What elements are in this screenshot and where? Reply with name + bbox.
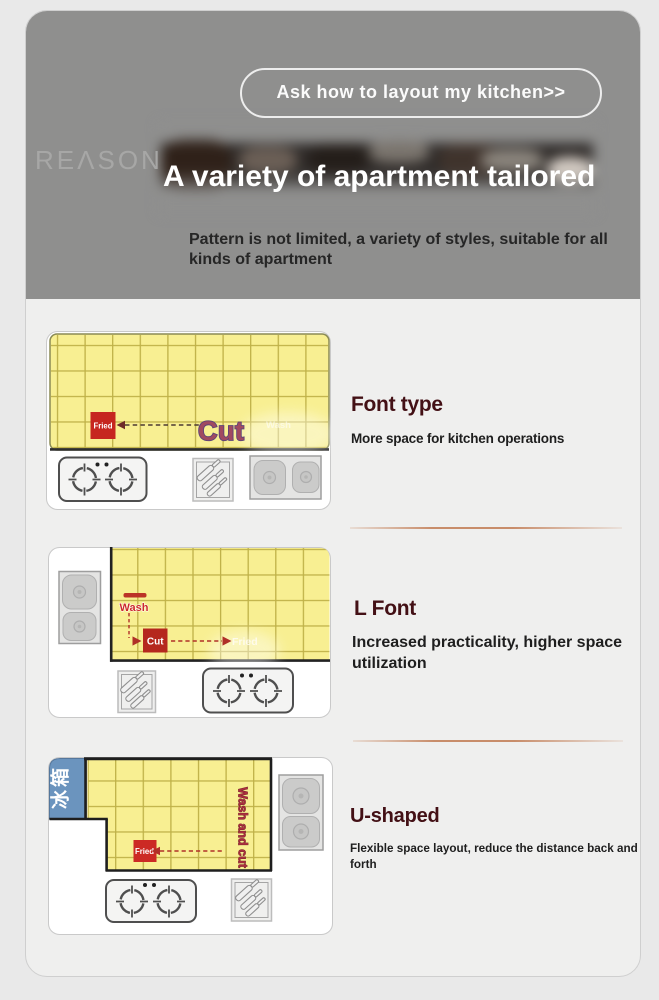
svg-text:Cut: Cut — [146, 637, 163, 648]
svg-text:Cut: Cut — [198, 416, 244, 446]
svg-text:冰箱: 冰箱 — [48, 765, 71, 809]
svg-text:Wash: Wash — [266, 420, 291, 431]
svg-text:Fried: Fried — [134, 847, 153, 856]
svg-text:Fried: Fried — [232, 636, 258, 648]
svg-text:Fried: Fried — [93, 422, 112, 431]
svg-text:Wash and cut: Wash and cut — [235, 787, 249, 869]
svg-text:Wash: Wash — [119, 602, 148, 614]
